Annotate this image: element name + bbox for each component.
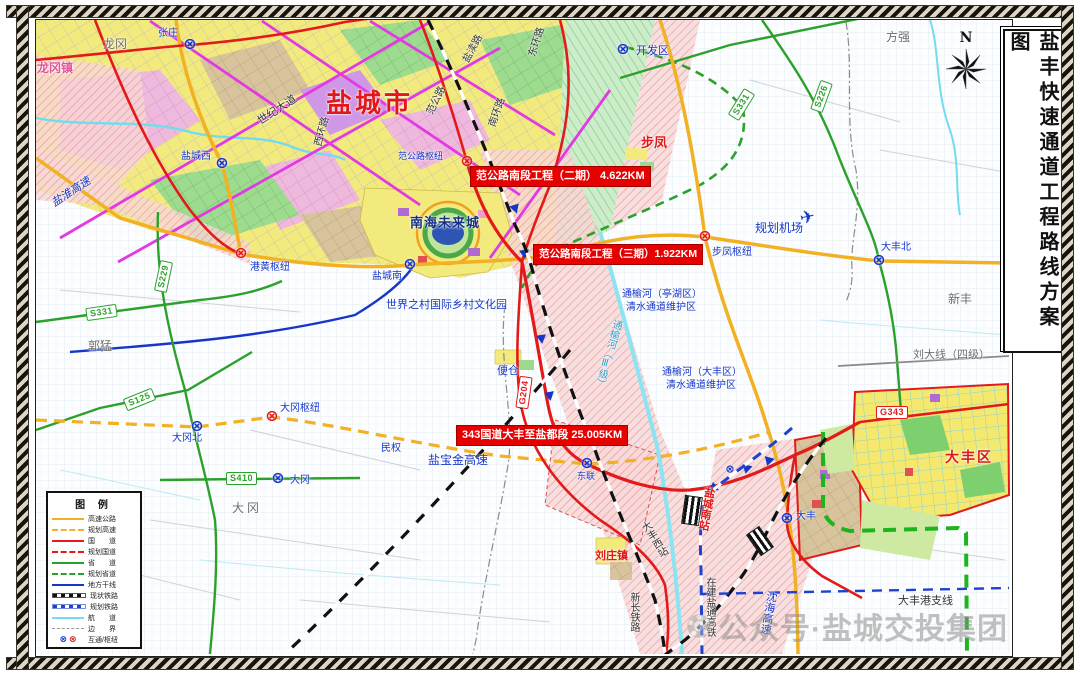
place-label: 便仓 xyxy=(497,366,519,377)
interchange-icon: ⊗ xyxy=(403,257,416,273)
road-label: 盐宝金高速 xyxy=(428,454,488,466)
hub-label: 范公路枢纽 xyxy=(398,152,443,161)
interchange-icon: ⊗ xyxy=(580,456,593,472)
legend-line-planned-railway xyxy=(52,604,86,609)
project-label-g343: 343国道大丰至盐都段 25.005KM xyxy=(456,425,628,446)
compass-rose-icon xyxy=(944,46,988,92)
hub-label: 步凤枢纽 xyxy=(712,248,752,258)
frame-ornament-top xyxy=(6,5,1074,18)
wechat-account-logo-icon xyxy=(686,605,712,647)
interchange-label: 东联 xyxy=(577,472,595,481)
map-canvas xyxy=(36,20,1010,654)
legend-line-waterway xyxy=(52,617,84,619)
place-label: 步凤 xyxy=(641,136,667,149)
legend-line-local-trunk xyxy=(52,584,84,586)
compass-north-label: N xyxy=(944,30,988,46)
title-box: 盐丰快速通道工程路线方案图 xyxy=(1000,26,1064,352)
interchange-label: 开发区 xyxy=(636,46,669,57)
interchange-icon: ⊗ xyxy=(183,37,196,53)
frame-ornament-left xyxy=(16,5,29,670)
protection-zone-label: 通榆河（亭湖区） xyxy=(622,290,702,300)
legend-line-planned-national-road xyxy=(52,551,84,553)
legend-line-existing-railway xyxy=(52,593,86,598)
place-label: 大冈 xyxy=(232,502,262,514)
legend-row: 地方干线 xyxy=(48,579,140,590)
place-label: 郭猛 xyxy=(88,340,112,352)
legend-row: 航 道 xyxy=(48,612,140,623)
legend-line-provincial-road xyxy=(52,562,84,564)
interchange-icon: ⊗ xyxy=(616,42,629,58)
interchange-label: 盐城西 xyxy=(181,152,211,162)
road-shield-g343: G343 xyxy=(876,406,908,419)
place-label: 民权 xyxy=(381,444,401,454)
area-label: 南海未来城 xyxy=(410,216,480,229)
district-label: 大丰区 xyxy=(945,450,993,464)
legend-row: 现状铁路 xyxy=(48,590,140,601)
legend-row: ⊗ ⊗ 互通/枢纽 xyxy=(48,634,140,645)
place-label: 龙冈 xyxy=(103,38,127,50)
interchange-icon: ⊗ xyxy=(872,253,885,269)
watermark-text: 公众号·盐城交投集团 xyxy=(718,604,1008,648)
legend-interchange-icons: ⊗ ⊗ xyxy=(52,635,84,644)
place-label: 龙冈镇 xyxy=(37,62,73,74)
legend-row: 国 道 xyxy=(48,535,140,546)
interchange-icon: ⊗ xyxy=(215,156,228,172)
hub-icon: ⊗ xyxy=(265,409,278,425)
legend-row: 省 道 xyxy=(48,557,140,568)
interchange-label: 大冈 xyxy=(290,476,310,486)
hub-icon: ⊗ xyxy=(234,246,247,262)
place-label: 新丰 xyxy=(948,293,972,305)
city-label-yancheng: 盐城市 xyxy=(326,90,413,116)
legend-line-planned-expressway xyxy=(52,529,84,531)
legend-line-planned-provincial-road xyxy=(52,573,84,575)
legend-row: 高速公路 xyxy=(48,513,140,524)
railway-label: 新长铁路 xyxy=(628,592,638,632)
place-label: 规划机场 xyxy=(755,222,803,234)
road-shield-s410: S410 xyxy=(226,472,257,485)
legend-row: 规划国道 xyxy=(48,546,140,557)
legend-row: 规划铁路 xyxy=(48,601,140,612)
legend-row: 规划高速 xyxy=(48,524,140,535)
legend-title: 图 例 xyxy=(48,496,140,511)
frame-ornament-right xyxy=(1061,5,1074,670)
hub-label: 大冈枢纽 xyxy=(280,404,320,414)
watermark: 公众号·盐城交投集团 xyxy=(686,604,1008,648)
protection-zone-label: 通榆河（大丰区） xyxy=(662,368,742,378)
title-box-inner: 盐丰快速通道工程路线方案图 xyxy=(1003,29,1065,353)
legend-line-expressway xyxy=(52,518,84,520)
place-label: 方强 xyxy=(886,31,910,43)
legend-row: 边 界 xyxy=(48,623,140,634)
hub-icon: ⊗ xyxy=(69,635,77,644)
protection-zone-label: 清水通道维护区 xyxy=(666,381,736,391)
interchange-label: 张庄 xyxy=(158,29,178,39)
legend-line-national-road xyxy=(52,540,84,542)
hub-icon: ⊗ xyxy=(698,229,711,245)
interchange-icon: ⊗ xyxy=(271,471,284,487)
legend-line-boundary xyxy=(52,628,84,629)
frame-ornament-bottom xyxy=(6,657,1074,670)
interchange-icon: ⊗ xyxy=(780,511,793,527)
compass: N xyxy=(944,30,988,97)
project-label-phase3: 范公路南段工程（三期）1.922KM xyxy=(533,244,703,265)
map-page: { "title": "盐丰快速通道工程路线方案图", "compass_lab… xyxy=(0,0,1080,675)
protection-zone-label: 清水通道维护区 xyxy=(626,303,696,313)
interchange-label: 大冈北 xyxy=(172,434,202,444)
interchange-label: 大丰北 xyxy=(881,243,911,253)
interchange-label: 盐城南 xyxy=(372,272,402,282)
interchange-icon: ⊗ xyxy=(725,465,734,476)
legend: 图 例 高速公路 规划高速 国 道 规划国道 省 道 规划省道 地方干线 现状铁… xyxy=(46,491,142,649)
project-label-phase2: 范公路南段工程（二期） 4.622KM xyxy=(470,166,651,187)
legend-row: 规划省道 xyxy=(48,568,140,579)
page-title: 盐丰快速通道工程路线方案图 xyxy=(1005,31,1063,351)
place-label: 刘庄镇 xyxy=(595,551,628,562)
hub-label: 港黄枢纽 xyxy=(250,263,290,273)
interchange-icon: ⊗ xyxy=(59,635,67,644)
interchange-label: 大丰 xyxy=(796,512,816,522)
road-label: 刘大线（四级） xyxy=(913,350,990,361)
area-label: 世界之村国际乡村文化园 xyxy=(386,300,507,311)
